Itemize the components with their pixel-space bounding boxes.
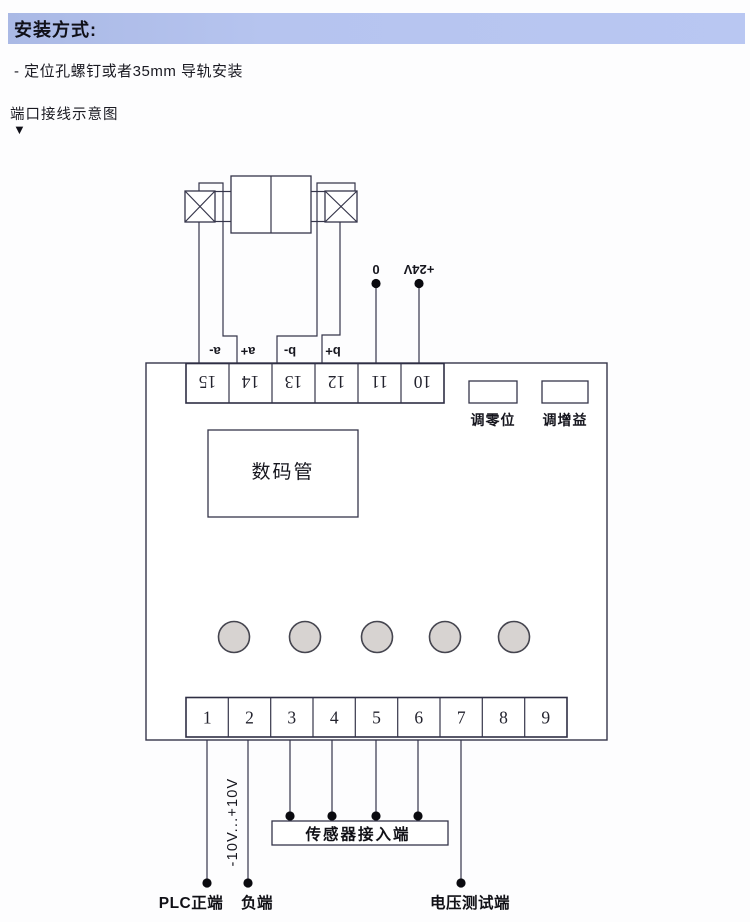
voltage-test-label: 电压测试端	[430, 893, 510, 912]
terminal-13: 13	[285, 372, 303, 392]
terminal-6: 6	[414, 708, 423, 728]
push-button	[219, 622, 250, 653]
zero-adjust-pot	[469, 381, 517, 403]
connection-dot	[243, 878, 252, 887]
manual-page: a- a+ b- b+ 0 +24V 15 14 13 12	[0, 0, 750, 922]
connection-dot	[327, 811, 336, 820]
terminal-14: 14	[242, 372, 260, 392]
device-body	[146, 363, 607, 740]
sensor-input-box: 传感器接入端	[272, 821, 448, 845]
coil-b-symbol	[325, 191, 357, 222]
terminal-10: 10	[414, 372, 432, 392]
top-terminal-strip: 15 14 13 12 11 10	[186, 364, 444, 404]
coil-a-symbol	[185, 191, 215, 222]
install-note: - 定位孔螺钉或者35mm 导轨安装	[14, 60, 243, 81]
sensor-input-label: 传感器接入端	[304, 825, 410, 844]
lvdt-sensor-symbol	[185, 176, 357, 233]
digital-display: 数码管	[208, 430, 358, 517]
power-wires: 0 +24V	[371, 262, 434, 363]
gain-adjust-pot	[542, 381, 588, 403]
terminal-9: 9	[541, 708, 550, 728]
bottom-terminal-strip: 1 2 3 4 5 6 7 8 9	[186, 698, 567, 738]
terminal-7: 7	[457, 708, 466, 728]
bottom-wires	[202, 740, 465, 888]
terminal-1: 1	[203, 708, 212, 728]
label-a-plus: a+	[240, 344, 255, 359]
connection-dot	[285, 811, 294, 820]
section-header: 安装方式:	[8, 13, 745, 44]
terminal-8: 8	[499, 708, 508, 728]
push-button	[499, 622, 530, 653]
label-zero: 0	[372, 262, 379, 277]
terminal-4: 4	[330, 708, 339, 728]
connection-dot	[202, 878, 211, 887]
endpoint-labels: PLC正端 负端 电压测试端	[159, 893, 510, 912]
voltage-range-label: -10V...+10V	[225, 778, 241, 867]
label-b-minus: b-	[284, 344, 296, 359]
terminal-5: 5	[372, 708, 381, 728]
wiring-diagram: a- a+ b- b+ 0 +24V 15 14 13 12	[0, 0, 750, 922]
diagram-title: 端口接线示意图	[10, 103, 119, 124]
terminal-15: 15	[199, 372, 217, 392]
section-title: 安装方式:	[8, 16, 97, 42]
negative-label: 负端	[241, 893, 273, 912]
label-b-plus: b+	[325, 344, 341, 359]
terminal-3: 3	[287, 708, 296, 728]
connection-dot	[456, 878, 465, 887]
label-24v: +24V	[403, 262, 434, 277]
terminal-12: 12	[328, 372, 346, 392]
down-arrow-icon: ▼	[13, 122, 26, 137]
terminal-11: 11	[371, 372, 388, 392]
plc-positive-label: PLC正端	[159, 893, 224, 912]
connection-dot	[414, 279, 423, 288]
gain-adjust-label: 调增益	[543, 412, 588, 428]
display-label: 数码管	[251, 461, 314, 483]
connection-dot	[371, 279, 380, 288]
connection-dot	[371, 811, 380, 820]
zero-adjust-label: 调零位	[471, 412, 516, 428]
push-button	[362, 622, 393, 653]
connection-dot	[413, 811, 422, 820]
push-button	[290, 622, 321, 653]
label-a-minus: a-	[209, 344, 221, 359]
coil-terminal-labels: a- a+ b- b+	[209, 344, 341, 359]
wire-b-plus	[322, 222, 340, 363]
push-button	[430, 622, 461, 653]
terminal-2: 2	[245, 708, 254, 728]
